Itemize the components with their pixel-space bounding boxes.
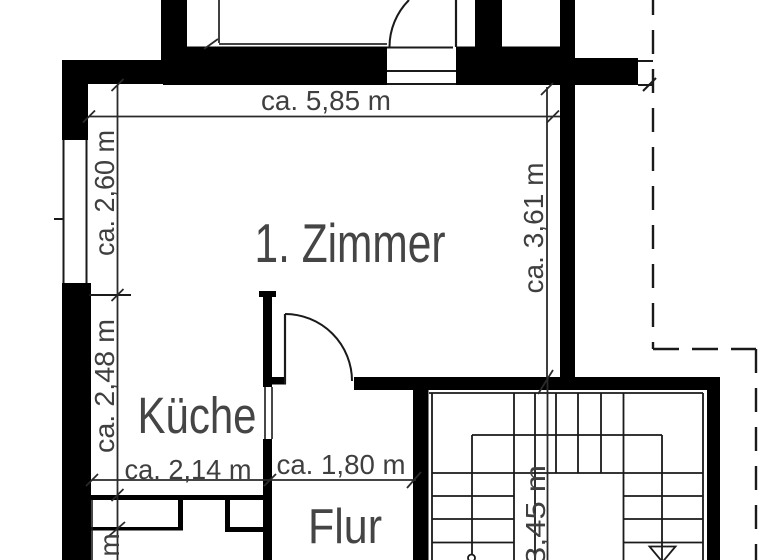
svg-text:ca. 2,60 m: ca. 2,60 m — [89, 130, 120, 256]
svg-text:ca. 2,14 m: ca. 2,14 m — [125, 454, 252, 485]
svg-text:Küche: Küche — [138, 387, 257, 444]
svg-text:ca. 1,80 m: ca. 1,80 m — [277, 449, 406, 480]
svg-text:m: m — [94, 533, 125, 556]
svg-text:ca. 3,61 m: ca. 3,61 m — [518, 163, 549, 294]
svg-text:Flur: Flur — [308, 500, 382, 554]
svg-text:1. Zimmer: 1. Zimmer — [255, 212, 446, 274]
svg-text:ca. 5,85 m: ca. 5,85 m — [261, 85, 391, 116]
svg-text:ca. 2,48 m: ca. 2,48 m — [89, 319, 120, 453]
svg-text:3,45 m: 3,45 m — [520, 465, 551, 560]
